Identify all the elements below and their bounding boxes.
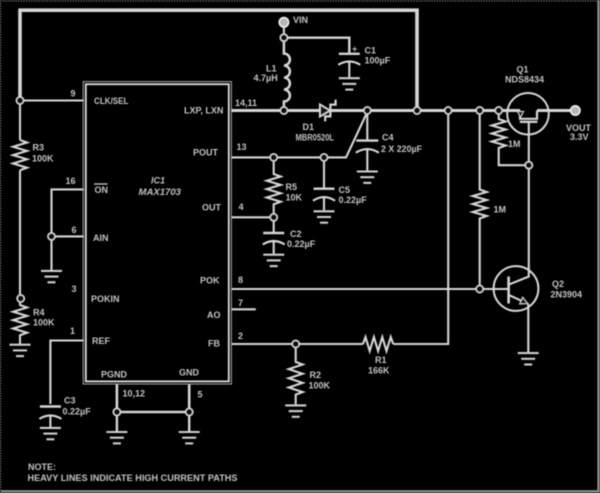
svg-text:6: 6 — [72, 225, 77, 235]
svg-text:R1: R1 — [375, 355, 387, 365]
svg-text:R4: R4 — [33, 308, 45, 318]
svg-text:C5: C5 — [339, 185, 351, 195]
svg-text:8: 8 — [238, 275, 243, 285]
svg-text:POK: POK — [200, 276, 220, 286]
svg-text:POKIN: POKIN — [91, 294, 120, 304]
svg-text:2: 2 — [238, 331, 243, 341]
svg-text:3.3V: 3.3V — [570, 132, 589, 142]
svg-text:100µF: 100µF — [365, 56, 391, 66]
svg-text:16: 16 — [66, 176, 76, 186]
svg-text:1M: 1M — [508, 139, 521, 149]
svg-text:100K: 100K — [33, 318, 55, 328]
svg-text:0.22µF: 0.22µF — [63, 407, 92, 417]
svg-text:0.22µF: 0.22µF — [339, 195, 368, 205]
svg-text:7: 7 — [238, 298, 243, 308]
svg-text:IC1: IC1 — [151, 176, 165, 186]
svg-text:14,11: 14,11 — [235, 98, 257, 108]
svg-text:1: 1 — [70, 326, 75, 336]
svg-text:GND: GND — [179, 368, 200, 378]
svg-text:5: 5 — [198, 390, 203, 400]
svg-text:2 X 220µF: 2 X 220µF — [381, 144, 422, 154]
svg-text:OUT: OUT — [202, 203, 222, 213]
svg-text:VIN: VIN — [293, 15, 308, 25]
svg-text:R5: R5 — [286, 182, 298, 192]
svg-text:2N3904: 2N3904 — [551, 290, 583, 300]
svg-text:R2: R2 — [310, 370, 322, 380]
svg-text:1M: 1M — [494, 205, 507, 215]
svg-text:13: 13 — [237, 142, 247, 152]
svg-text:REF: REF — [92, 336, 111, 346]
svg-text:L1: L1 — [266, 64, 277, 74]
svg-text:Q2: Q2 — [552, 279, 564, 289]
svg-text:10K: 10K — [286, 193, 303, 203]
svg-text:R3: R3 — [33, 143, 45, 153]
svg-text:C3: C3 — [64, 396, 76, 406]
svg-text:HEAVY LINES INDICATE HIGH CURR: HEAVY LINES INDICATE HIGH CURRENT PATHS — [28, 473, 238, 483]
svg-text:AIN: AIN — [93, 233, 109, 243]
svg-text:Q1: Q1 — [517, 65, 529, 75]
svg-text:4.7µH: 4.7µH — [254, 73, 278, 83]
svg-text:NOTE:: NOTE: — [28, 462, 56, 472]
svg-text:C1: C1 — [365, 46, 377, 56]
svg-text:ON: ON — [95, 185, 109, 195]
svg-text:10,12: 10,12 — [123, 389, 146, 399]
svg-text:3: 3 — [72, 284, 77, 294]
svg-text:+: + — [352, 44, 357, 54]
svg-text:166K: 166K — [368, 366, 390, 376]
svg-text:AO: AO — [207, 310, 221, 320]
svg-text:LXP, LXN: LXP, LXN — [184, 106, 223, 116]
svg-text:100K: 100K — [32, 154, 54, 164]
svg-text:POUT: POUT — [193, 148, 219, 158]
svg-text:0.22µF: 0.22µF — [287, 239, 316, 249]
svg-text:MAX1703: MAX1703 — [139, 187, 182, 197]
svg-text:MBR0520L: MBR0520L — [296, 133, 335, 143]
svg-text:4: 4 — [239, 202, 244, 212]
svg-text:D1: D1 — [303, 122, 315, 132]
svg-text:C2: C2 — [290, 229, 302, 239]
svg-text:C4: C4 — [382, 133, 394, 143]
svg-text:9: 9 — [71, 89, 76, 99]
svg-text:FB: FB — [208, 339, 220, 349]
svg-text:CLK/SEL: CLK/SEL — [94, 96, 129, 106]
svg-text:100K: 100K — [309, 381, 331, 391]
svg-text:NDS8434: NDS8434 — [505, 75, 544, 85]
svg-text:PGND: PGND — [101, 370, 128, 380]
